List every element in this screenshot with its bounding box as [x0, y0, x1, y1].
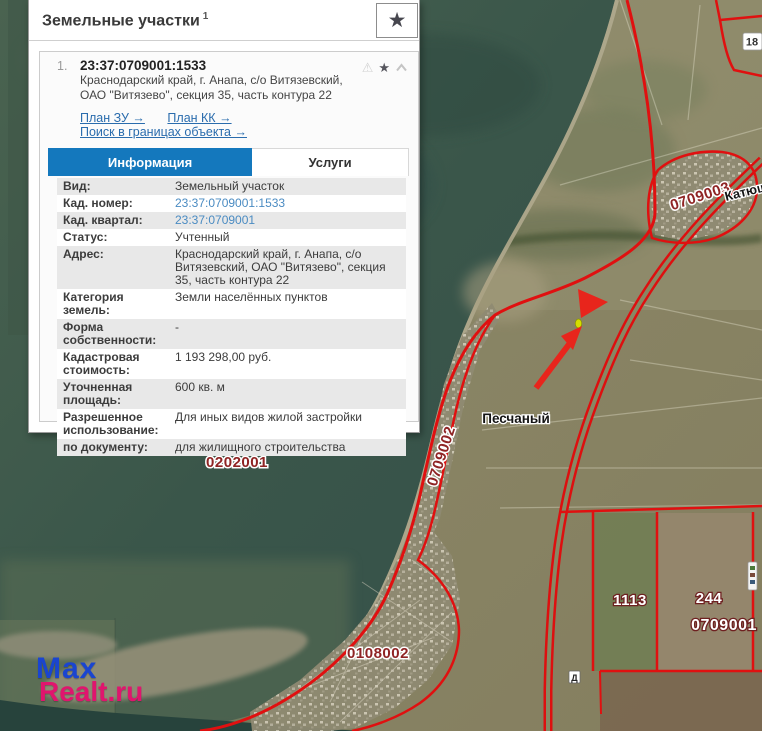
card-header-icons: ⚠ ★	[362, 61, 408, 74]
favorites-button[interactable]: ★	[376, 3, 418, 38]
tab-information[interactable]: Информация	[48, 148, 252, 176]
info-table: Вид:Земельный участок Кад. номер:23:37:0…	[57, 178, 406, 456]
parcel-links: План ЗУ → План КК → Поиск в границах объ…	[80, 111, 418, 139]
cadastral-number-link[interactable]: 23:37:0709001:1533	[175, 197, 402, 210]
info-row-po-dokumentu: по документу:для жилищного строительства	[57, 439, 406, 456]
star-icon: ★	[388, 10, 407, 31]
info-row-kad-nomer: Кад. номер:23:37:0709001:1533	[57, 195, 406, 212]
map-label-1113: 1113	[613, 592, 647, 609]
info-row-ploshchad: Уточненная площадь:600 кв. м	[57, 379, 406, 409]
map-label-peschany: Песчаный	[482, 411, 550, 426]
parcel-address-line1: Краснодарский край, г. Анапа, с/о Витязе…	[80, 73, 418, 88]
info-row-vid: Вид:Земельный участок	[57, 178, 406, 195]
result-index: 1.	[57, 59, 67, 73]
favorite-star-icon[interactable]: ★	[378, 61, 390, 74]
warning-icon[interactable]: ⚠	[362, 61, 374, 74]
cadastral-map-app: 18 Д 0202001 0709002 0709003 Катюша Песч…	[0, 0, 762, 731]
card-tabs: Информация Услуги	[48, 148, 409, 176]
map-label-244: 244	[696, 590, 723, 607]
info-row-adres: Адрес:Краснодарский край, г. Анапа, с/о …	[57, 246, 406, 289]
parcel-card: 1. 23:37:0709001:1533 Краснодарский край…	[39, 51, 419, 422]
info-row-stoimost: Кадастровая стоимость:1 193 298,00 руб.	[57, 349, 406, 379]
panel-title-text: Земельные участки	[42, 12, 200, 29]
plan-kk-link[interactable]: План КК →	[167, 111, 231, 125]
cadastral-quarter-link[interactable]: 23:37:0709001	[175, 214, 402, 227]
info-row-forma: Форма собственности:-	[57, 319, 406, 349]
collapse-chevron-icon[interactable]	[395, 63, 408, 72]
map-label-0202001: 0202001	[206, 454, 268, 471]
info-row-kategoriya: Категория земель:Земли населённых пункто…	[57, 289, 406, 319]
info-row-status: Статус:Учтенный	[57, 229, 406, 246]
plan-zu-link[interactable]: План ЗУ →	[80, 111, 145, 125]
info-row-ispolzovanie: Разрешенное использование:Для иных видов…	[57, 409, 406, 439]
map-label-0709001: 0709001	[691, 617, 757, 634]
parcel-address-line2: ОАО "Витязево", секция 35, часть контура…	[80, 88, 418, 103]
parcel-card-header: 1. 23:37:0709001:1533 Краснодарский край…	[40, 58, 418, 139]
map-label-d: Д	[571, 673, 578, 683]
info-row-kad-kvartal: Кад. квартал:23:37:0709001	[57, 212, 406, 229]
panel-title: Земельные участки1	[29, 0, 419, 30]
map-label-18: 18	[746, 37, 758, 49]
panel-header: Земельные участки1 ★	[29, 0, 419, 41]
results-panel: Земельные участки1 ★ 1. 23:37:0709001:15…	[28, 0, 420, 433]
tab-services[interactable]: Услуги	[252, 148, 409, 176]
map-label-0108002: 0108002	[347, 645, 409, 662]
search-in-bounds-link[interactable]: Поиск в границах объекта →	[80, 125, 247, 139]
panel-title-count: 1	[203, 11, 209, 22]
